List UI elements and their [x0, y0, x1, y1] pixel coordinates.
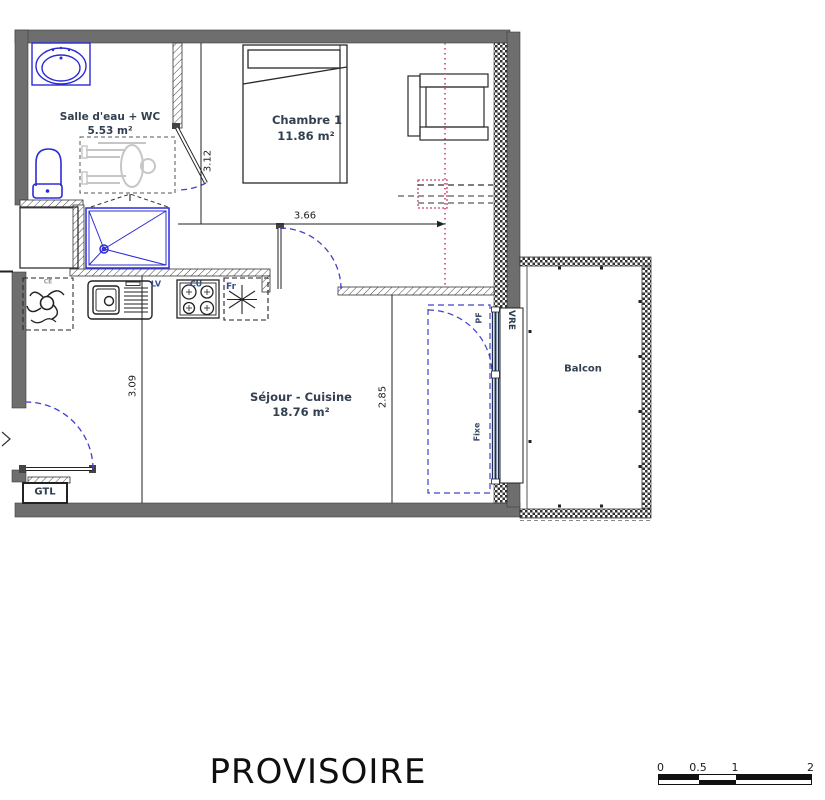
- balcony-railing: [520, 509, 651, 518]
- french-window-label: PF: [475, 312, 484, 323]
- french-window: [428, 305, 523, 493]
- wall-left-mid: [12, 272, 26, 408]
- fridge-label: Fr: [226, 282, 236, 292]
- wall-right-lower: [507, 483, 520, 507]
- fixed-pane-label: Fixe: [473, 423, 482, 442]
- balcony-posts: [529, 267, 642, 508]
- scale-tick-2: 2: [807, 761, 814, 774]
- wall-left-upper: [15, 30, 28, 205]
- wardrobe-icon: [408, 74, 488, 140]
- window-zone: [428, 305, 490, 493]
- dimension-arrow: [437, 221, 445, 227]
- balcony: [520, 257, 651, 521]
- toilet-icon: [33, 149, 62, 198]
- bathroom-name: Salle d'eau + WC: [60, 111, 160, 123]
- plan-title: PROVISOIRE: [209, 752, 426, 792]
- wall-top: [15, 30, 510, 43]
- sink-unit-label: LV: [151, 280, 161, 289]
- gtl-label: GTL: [34, 487, 55, 498]
- scale-tick-0: 0: [657, 761, 664, 774]
- dimension-3-12: 3.12: [203, 150, 214, 172]
- section-marks: [398, 43, 493, 287]
- wheelchair-clearance-icon: [80, 137, 175, 193]
- water-heater-icon: [23, 278, 73, 330]
- roller-shutter-label: VRE: [506, 310, 516, 330]
- shutter-housing: [500, 308, 523, 483]
- balcony-floor: [527, 266, 642, 509]
- balcony-railing: [520, 257, 651, 266]
- wall-bottom: [15, 503, 520, 517]
- scale-tick-1: 1: [732, 761, 739, 774]
- bedroom-name: Chambre 1: [272, 113, 342, 127]
- shower-icon: [86, 208, 169, 268]
- dimension-3-66: 3.66: [294, 211, 316, 222]
- bathroom-area: 5.53 m²: [87, 125, 132, 137]
- balcony-railing: [642, 266, 651, 509]
- entrance-door: [2, 402, 96, 473]
- dimension-2-85: 2.85: [378, 386, 389, 408]
- door-swing-arc: [177, 183, 206, 190]
- balcony-name: Balcon: [564, 364, 602, 375]
- living-name: Séjour - Cuisine: [250, 390, 352, 404]
- bathroom-cabinet: [20, 207, 78, 268]
- floorplan-page: Salle d'eau + WC 5.53 m² Chambre 1 11.86…: [0, 0, 825, 800]
- cooktop-label: CU: [190, 280, 202, 289]
- water-heater-label: CE: [44, 279, 53, 286]
- washbasin-icon: [32, 43, 90, 85]
- living-area: 18.76 m²: [272, 405, 329, 419]
- door-swing-arc: [280, 228, 341, 289]
- scale-ticks: 0 0.5 1 2: [658, 761, 812, 774]
- scale-tick-0-5: 0.5: [689, 761, 707, 774]
- scale-bar-graphic: [658, 774, 812, 785]
- wall-right-upper: [507, 32, 520, 308]
- door-swing-arc: [26, 402, 93, 469]
- scale-bar: 0 0.5 1 2: [658, 761, 812, 787]
- bedroom-door: [276, 223, 341, 289]
- bedroom-area: 11.86 m²: [277, 129, 334, 143]
- entrance-arrow-icon: [2, 432, 10, 446]
- dimension-3-09: 3.09: [128, 375, 139, 397]
